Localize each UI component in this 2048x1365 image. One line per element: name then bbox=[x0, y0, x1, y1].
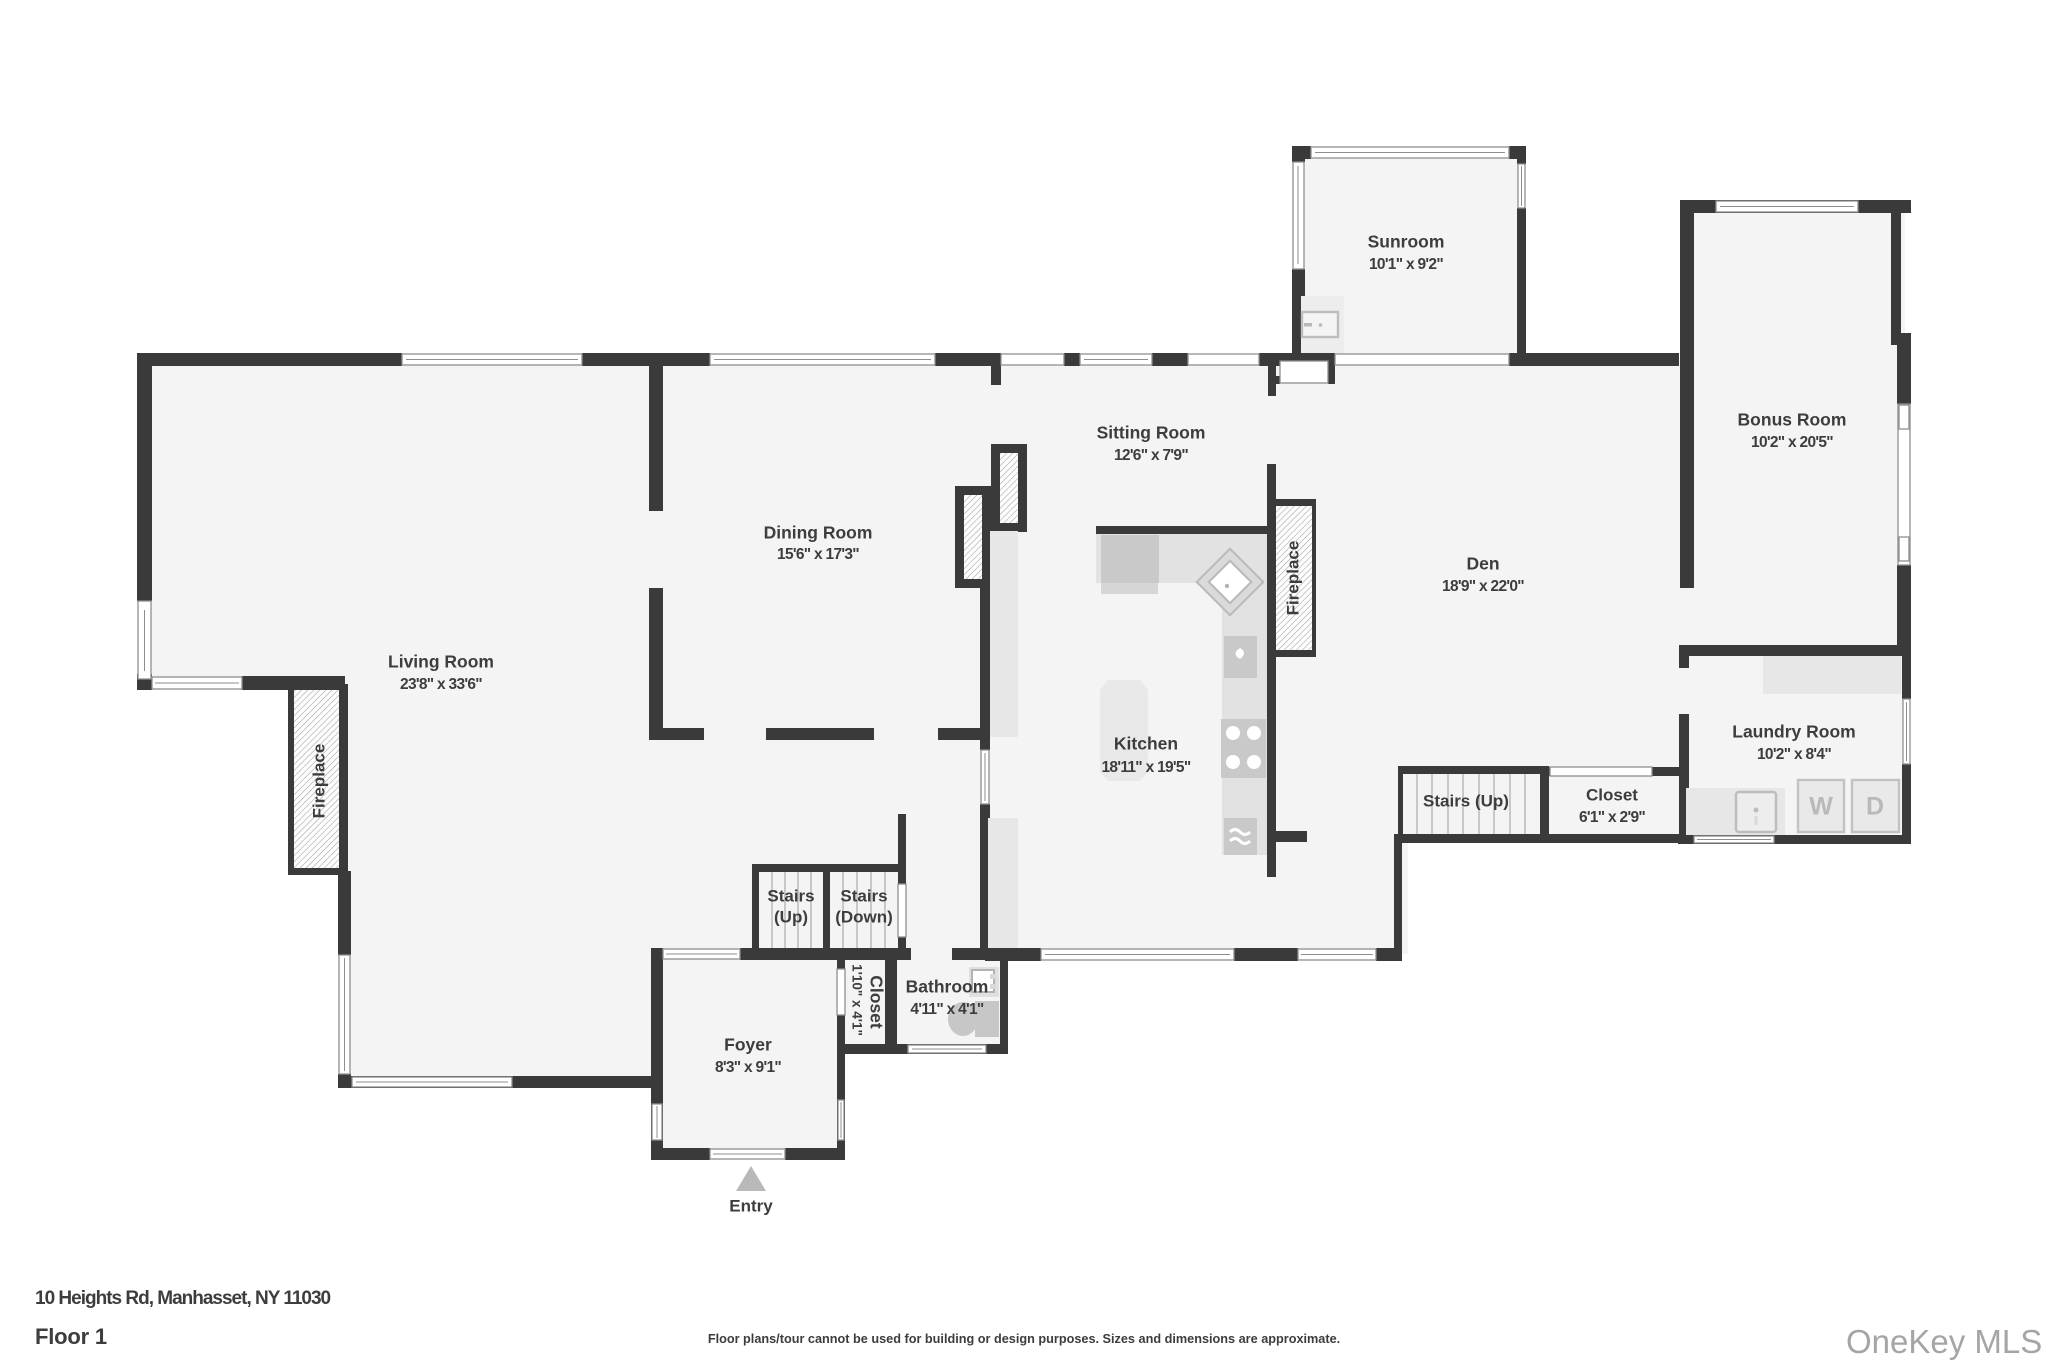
svg-text:Laundry Room: Laundry Room bbox=[1732, 722, 1855, 742]
svg-text:8'3" x 9'1": 8'3" x 9'1" bbox=[715, 1059, 781, 1076]
svg-text:Sunroom: Sunroom bbox=[1368, 232, 1445, 252]
svg-text:Closet: Closet bbox=[1586, 785, 1638, 804]
svg-text:6'1" x 2'9": 6'1" x 2'9" bbox=[1579, 809, 1645, 826]
svg-text:Bathroom: Bathroom bbox=[906, 977, 989, 997]
svg-text:Stairs (Up): Stairs (Up) bbox=[1423, 791, 1509, 810]
svg-text:Entry: Entry bbox=[729, 1196, 773, 1215]
svg-text:Foyer: Foyer bbox=[724, 1035, 772, 1055]
svg-text:10'2" x 8'4": 10'2" x 8'4" bbox=[1757, 746, 1831, 763]
svg-text:D: D bbox=[1866, 793, 1884, 821]
svg-text:10'1" x 9'2": 10'1" x 9'2" bbox=[1369, 256, 1443, 273]
svg-text:(Down): (Down) bbox=[835, 907, 893, 926]
svg-text:12'6" x 7'9": 12'6" x 7'9" bbox=[1114, 447, 1188, 464]
svg-text:Floor plans/tour cannot be use: Floor plans/tour cannot be used for buil… bbox=[708, 1332, 1340, 1346]
svg-text:Fireplace: Fireplace bbox=[1283, 541, 1302, 616]
svg-text:W: W bbox=[1809, 793, 1833, 821]
svg-text:Stairs: Stairs bbox=[767, 886, 814, 905]
svg-text:Floor 1: Floor 1 bbox=[35, 1324, 107, 1349]
svg-text:18'11" x 19'5": 18'11" x 19'5" bbox=[1102, 759, 1191, 776]
svg-text:18'9" x 22'0": 18'9" x 22'0" bbox=[1442, 578, 1524, 595]
svg-text:OneKey MLS: OneKey MLS bbox=[1846, 1323, 2042, 1360]
svg-text:Bonus Room: Bonus Room bbox=[1738, 410, 1847, 430]
svg-text:Fireplace: Fireplace bbox=[309, 744, 328, 819]
svg-text:Kitchen: Kitchen bbox=[1114, 734, 1178, 754]
svg-text:10'2" x 20'5": 10'2" x 20'5" bbox=[1751, 434, 1833, 451]
svg-text:4'11" x 4'1": 4'11" x 4'1" bbox=[910, 1001, 984, 1018]
svg-text:10 Heights Rd, Manhasset, NY 1: 10 Heights Rd, Manhasset, NY 11030 bbox=[35, 1288, 331, 1309]
svg-text:Den: Den bbox=[1466, 554, 1499, 574]
svg-text:15'6" x 17'3": 15'6" x 17'3" bbox=[777, 546, 859, 563]
svg-text:Dining Room: Dining Room bbox=[764, 523, 873, 543]
svg-text:Stairs: Stairs bbox=[840, 886, 887, 905]
svg-text:Living Room: Living Room bbox=[388, 652, 494, 672]
svg-text:(Up): (Up) bbox=[774, 907, 808, 926]
svg-text:Sitting Room: Sitting Room bbox=[1097, 423, 1206, 443]
svg-text:23'8" x 33'6": 23'8" x 33'6" bbox=[400, 676, 482, 693]
svg-text:Closet: Closet bbox=[866, 975, 886, 1029]
svg-text:1'10" x 4'1": 1'10" x 4'1" bbox=[849, 964, 864, 1036]
